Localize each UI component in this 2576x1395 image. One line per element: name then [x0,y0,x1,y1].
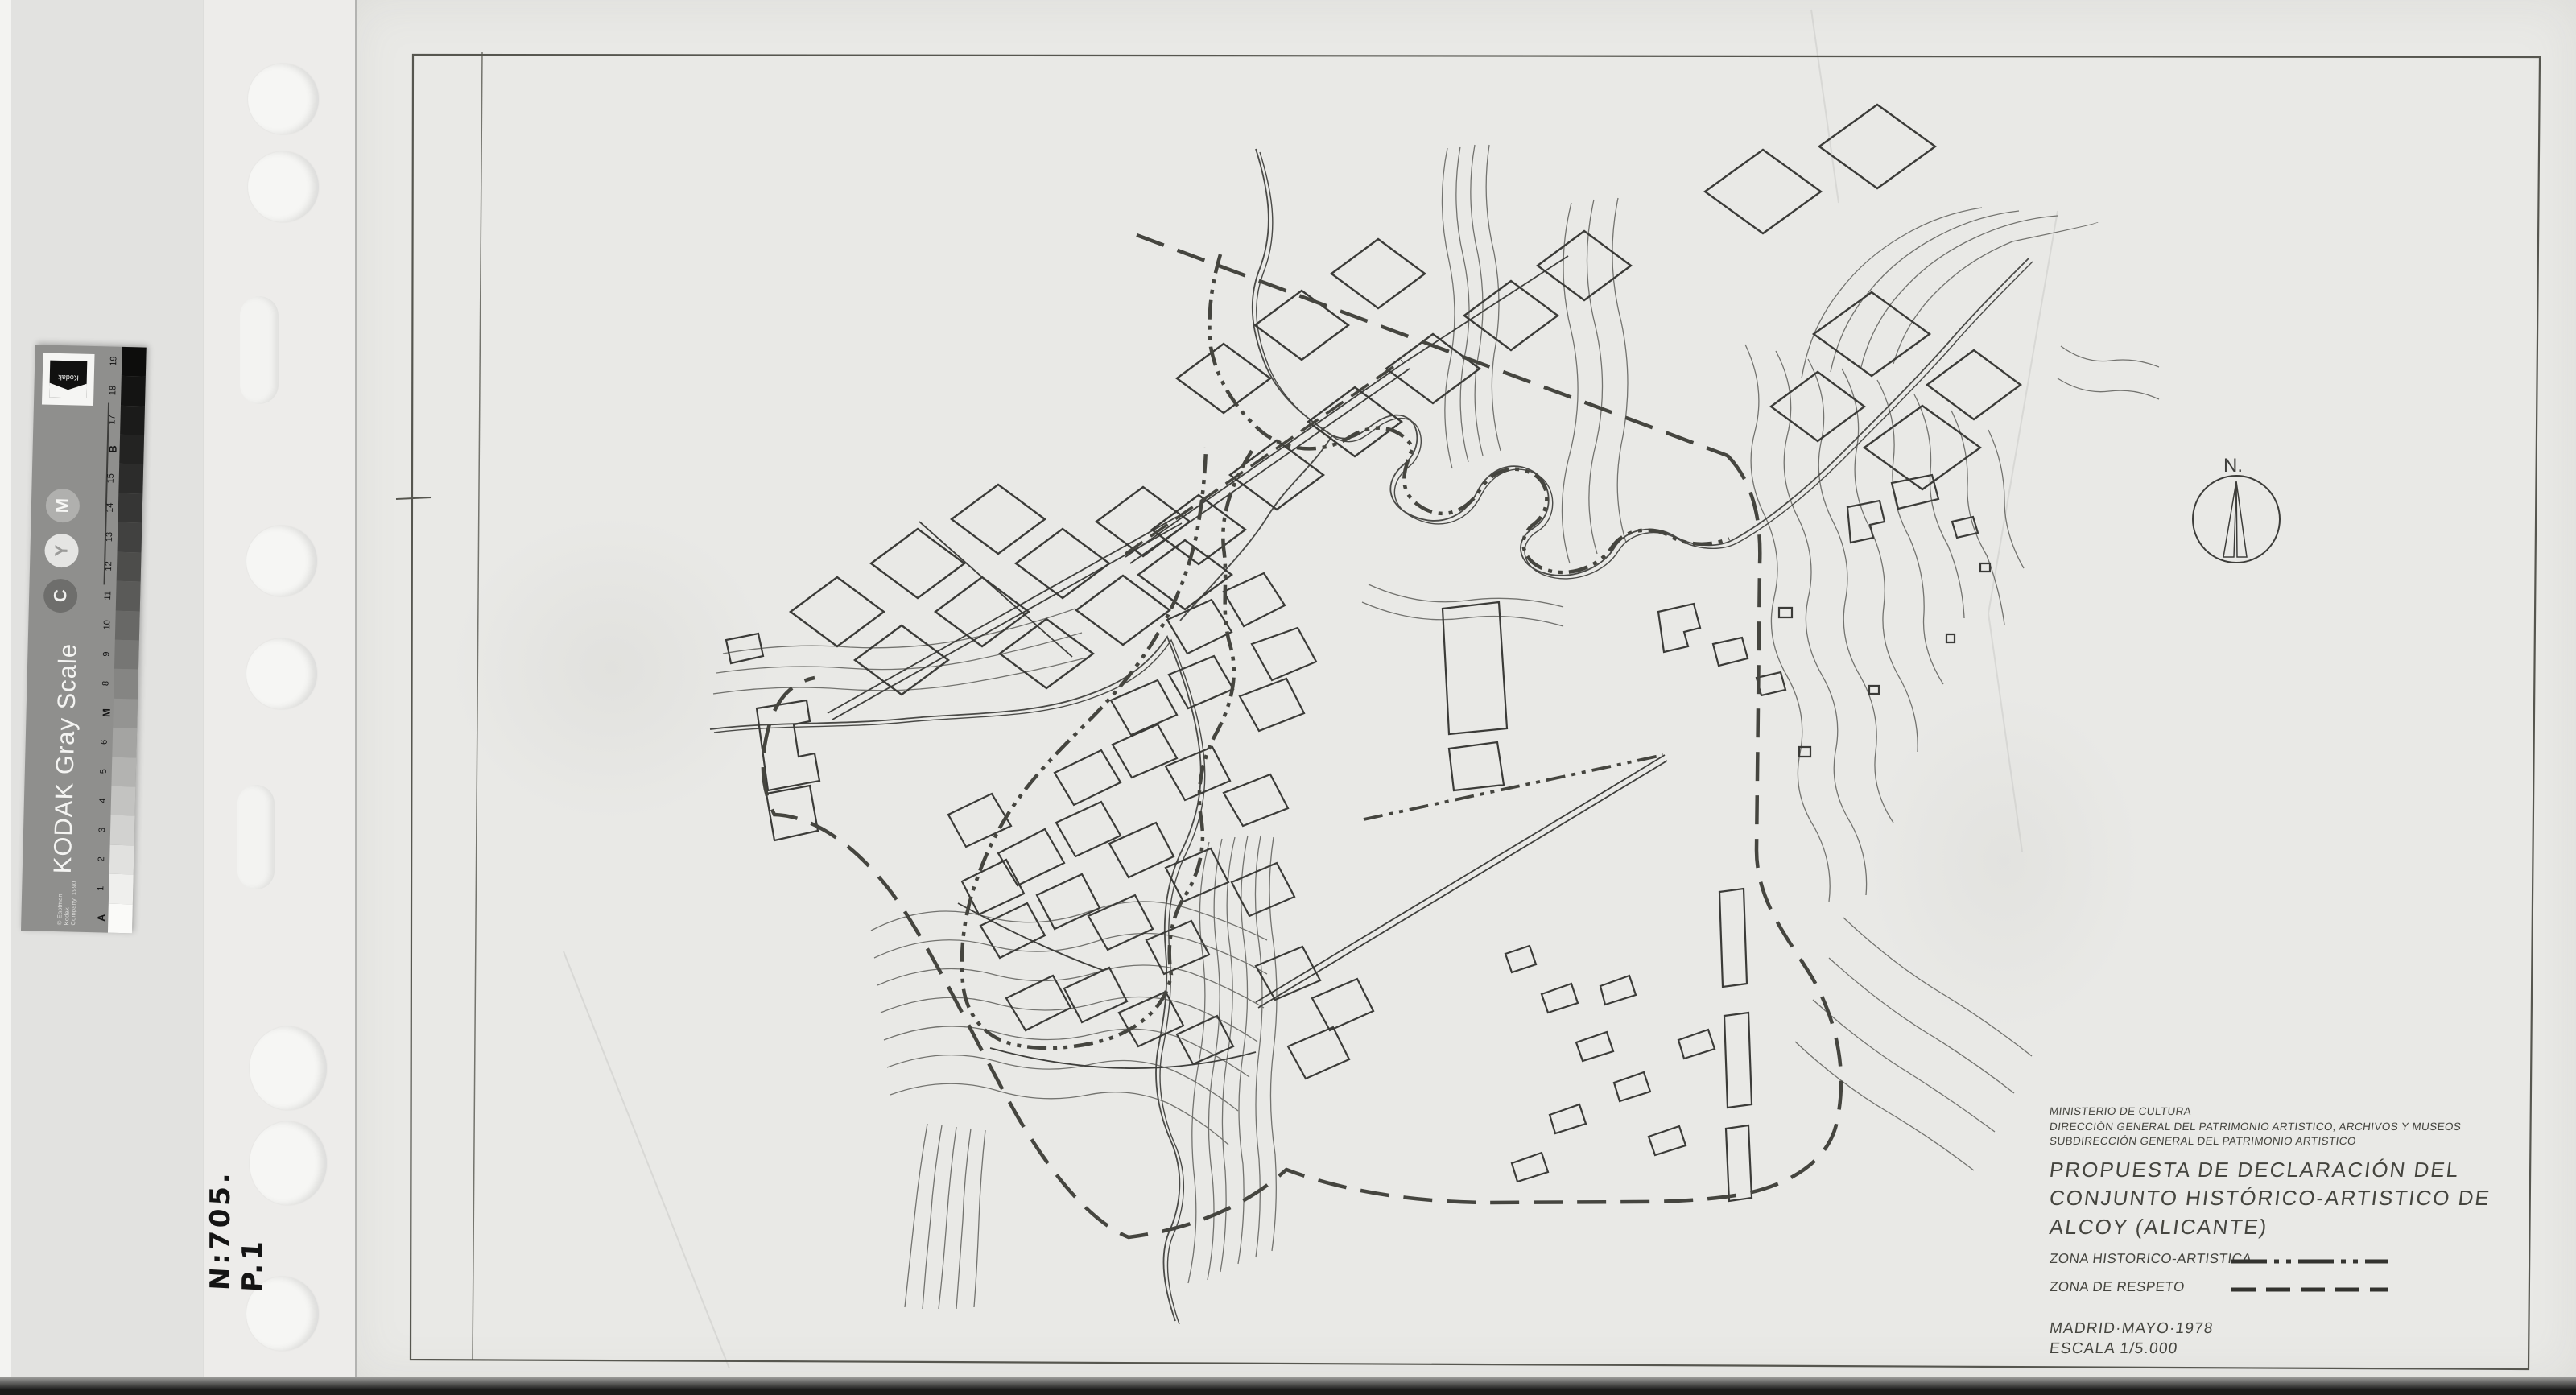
map-title: PROPUESTA DE DECLARACIÓN DEL CONJUNTO HI… [2050,1156,2516,1242]
river [710,149,2033,1324]
scanned-archive-sheet: { "document": { "agency_lines": [ "MINIS… [0,0,2576,1395]
north-arrow-icon: N. [2193,455,2280,563]
contour-lines [713,145,2159,1309]
city-block-grid [791,105,2021,695]
legend-item-historic-zone: ZONA HISTORICO-ARTISTICA [2050,1251,2516,1279]
legend-item-respect-zone: ZONA DE RESPETO [2050,1279,2516,1307]
streets [828,256,1667,1068]
old-town-blocks [726,475,1990,1201]
scale-line: ESCALA 1/5.000 [2048,1339,2178,1359]
map-title-line: ALCOY (ALICANTE) [2048,1213,2270,1242]
legend: ZONA HISTORICO-ARTISTICA ZONA DE RESPETO [2050,1251,2516,1307]
map-title-line: CONJUNTO HISTÓRICO-ARTISTICO DE [2048,1184,2492,1213]
paper-creases [563,10,2058,1368]
legend-line-respect [2230,1286,2391,1294]
map-title-line: PROPUESTA DE DECLARACIÓN DEL [2048,1156,2462,1185]
agency-line: SUBDIRECCIÓN GENERAL DEL PATRIMONIO ARTI… [2049,1134,2357,1149]
respect-zone-boundary [763,235,1841,1237]
historic-zone-boundary [962,254,1729,1048]
agency-line: MINISTERIO DE CULTURA [2049,1104,2192,1120]
date-line: MADRID·MAYO·1978 [2048,1319,2215,1339]
title-block: MINISTERIO DE CULTURA DIRECCIÓN GENERAL … [2050,1104,2516,1359]
agency-line: DIRECCIÓN GENERAL DEL PATRIMONIO ARTISTI… [2049,1120,2462,1135]
legend-label: ZONA DE RESPETO [2049,1279,2186,1295]
scanner-bed-edge [0,1377,2576,1395]
north-label: N. [2223,455,2243,477]
legend-label: ZONA HISTORICO-ARTISTICA [2049,1251,2253,1267]
legend-line-historic [2230,1257,2391,1265]
